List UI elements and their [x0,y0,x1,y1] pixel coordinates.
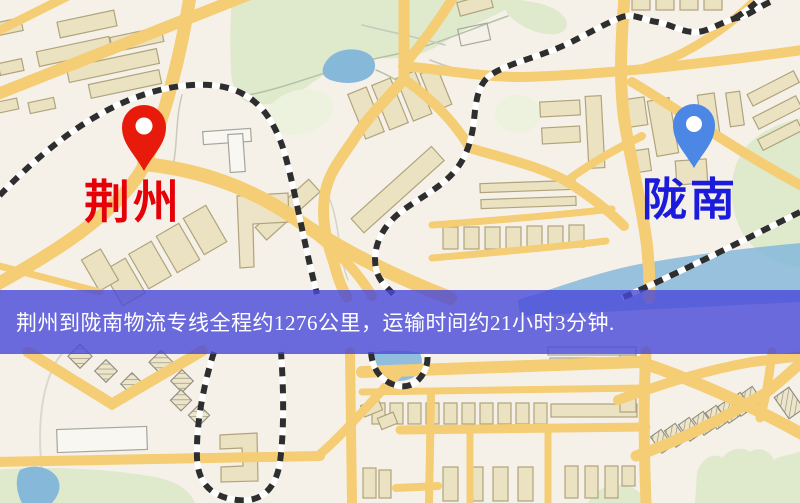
route-info-banner: 荆州到陇南物流专线全程约1276公里，运输时间约21小时3分钟. [0,290,800,354]
logistics-route-map: 荆州 陇南 荆州到陇南物流专线全程约1276公里，运输时间约21小时3分钟. [0,0,800,503]
route-info-text: 荆州到陇南物流专线全程约1276公里，运输时间约21小时3分钟. [0,307,615,337]
map-image [0,0,800,503]
destination-city-label: 陇南 [642,178,738,223]
origin-city-label: 荆州 [84,180,182,226]
